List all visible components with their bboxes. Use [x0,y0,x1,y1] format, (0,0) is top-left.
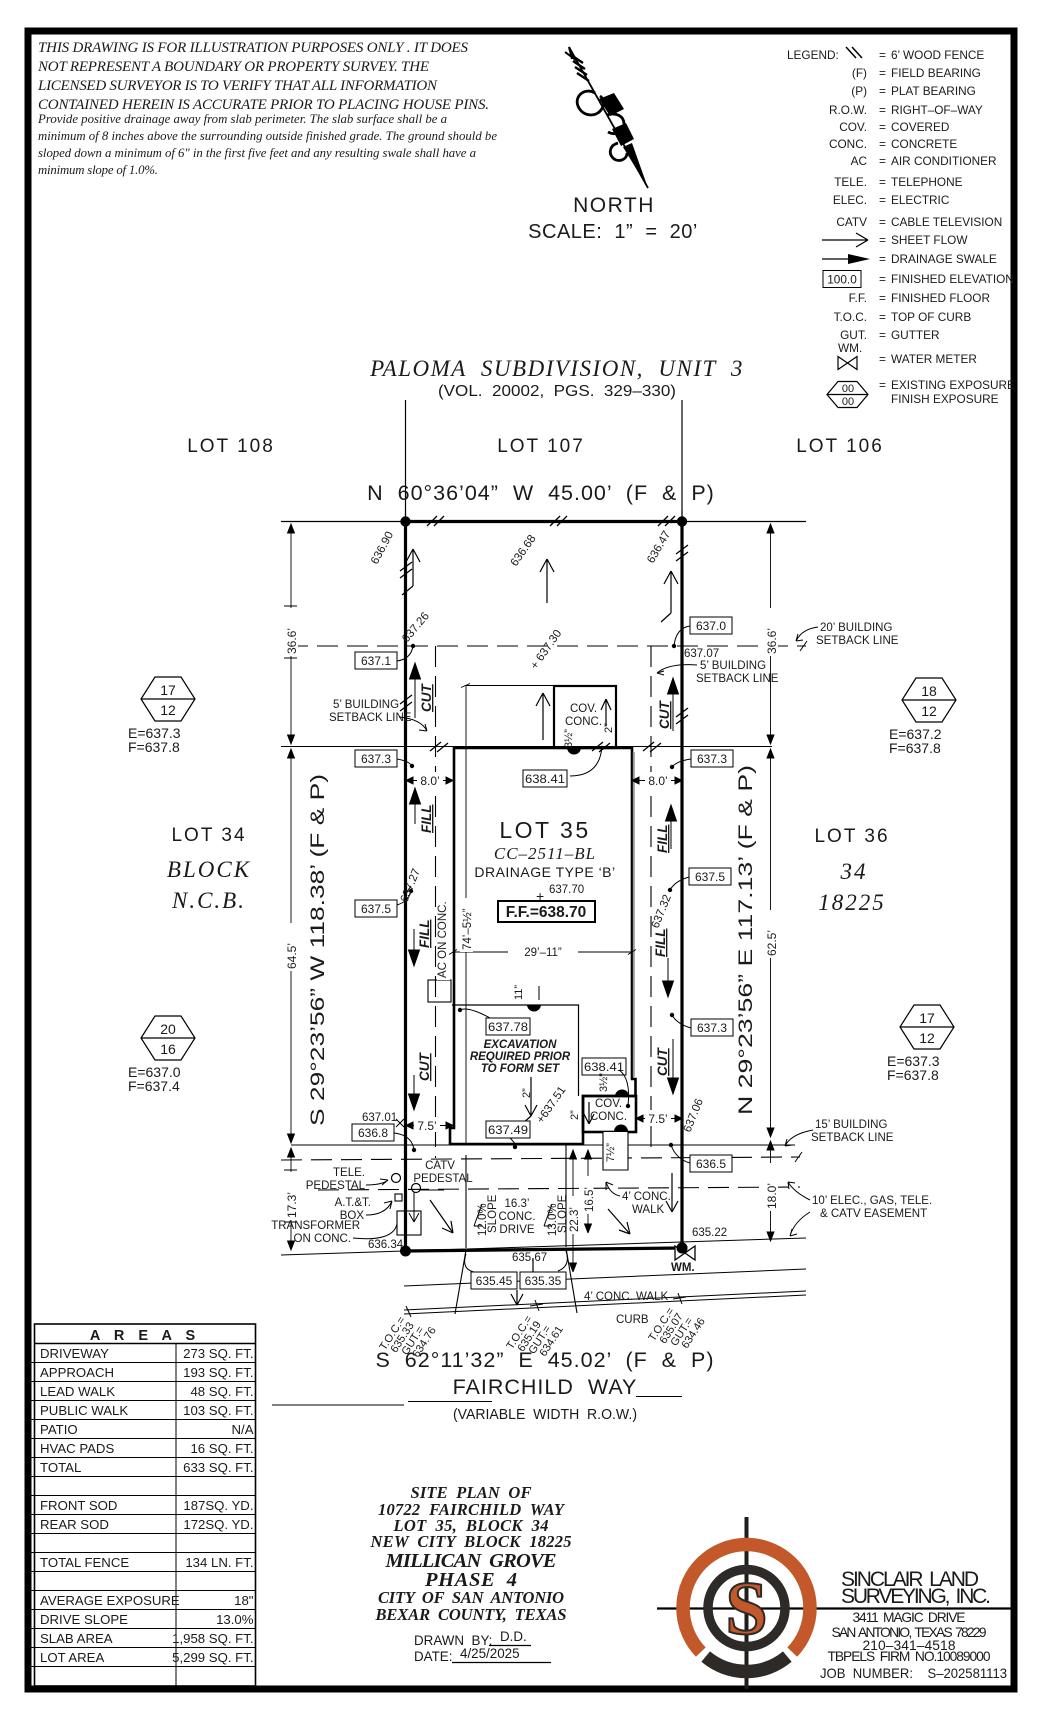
svg-text:CONC.: CONC. [498,1211,535,1223]
svg-text:13.0%: 13.0% [216,1612,254,1627]
svg-text:=: = [879,252,886,266]
svg-text:FILL: FILL [653,929,668,958]
svg-text:18225: 18225 [818,890,886,915]
svg-text:=: = [879,48,886,62]
svg-text:5’ BUILDING: 5’ BUILDING [700,660,766,672]
svg-text:RIGHT–OF–WAY: RIGHT–OF–WAY [891,103,983,117]
svg-text:36.6’: 36.6’ [285,628,299,654]
svg-text:(F): (F) [852,66,867,80]
svg-text:NEW CITY BLOCK 18225: NEW CITY BLOCK 18225 [370,1532,572,1551]
svg-text:Provide positive drainage away: Provide positive drainage away from slab… [37,112,447,126]
svg-text:15’ BUILDING: 15’ BUILDING [815,1119,887,1131]
svg-text:17: 17 [160,682,176,698]
svg-text:GUTTER: GUTTER [891,328,940,342]
svg-text:8.0’: 8.0’ [420,774,439,788]
svg-text:DRIVE SLOPE: DRIVE SLOPE [40,1612,128,1627]
svg-text:635.67: 635.67 [512,1252,547,1264]
svg-text:=: = [879,291,886,305]
svg-text:CONTAINED HEREIN IS ACCURATE P: CONTAINED HEREIN IS ACCURATE PRIOR TO PL… [38,97,489,113]
svg-text:AVERAGE EXPOSURE: AVERAGE EXPOSURE [40,1593,180,1608]
svg-text:100.0: 100.0 [827,273,857,287]
svg-text:=: = [879,103,886,117]
svg-text:3½”: 3½” [563,729,575,748]
svg-text:A.T.&T.: A.T.&T. [335,1197,371,1209]
svg-text:=: = [879,328,886,342]
svg-text:2”: 2” [569,1110,581,1120]
svg-text:DRAINAGE TYPE ‘B’: DRAINAGE TYPE ‘B’ [474,864,615,880]
svg-text:LICENSED SURVEYOR IS TO VERIFY: LICENSED SURVEYOR IS TO VERIFY THAT ALL … [37,78,438,94]
svg-text:=: = [879,66,886,80]
svg-text:DRAINAGE SWALE: DRAINAGE SWALE [891,252,997,266]
svg-text:=: = [879,120,886,134]
svg-text:637.1: 637.1 [361,654,391,668]
svg-text:636.34: 636.34 [368,1239,404,1251]
svg-text:DRIVE: DRIVE [499,1224,534,1236]
svg-text:LEGEND:: LEGEND: [787,48,839,62]
svg-text:1,958 SQ. FT.: 1,958 SQ. FT. [172,1631,253,1646]
svg-text:638.41: 638.41 [584,1060,624,1074]
svg-text:CATV: CATV [425,1160,455,1172]
svg-text:TRANSFORMER: TRANSFORMER [271,1220,360,1232]
svg-text:22.3’: 22.3’ [569,1207,581,1232]
svg-text:S 29°23’56” W 118.38’ (F & P): S 29°23’56” W 118.38’ (F & P) [307,774,329,1126]
svg-text:DATE:: DATE: [414,1649,452,1664]
svg-text:12: 12 [919,1030,935,1046]
svg-text:WALK: WALK [632,1204,664,1216]
svg-text:PALOMA SUBDIVISION, UNIT 3: PALOMA SUBDIVISION, UNIT 3 [369,356,744,381]
svg-text:134 LN. FT.: 134 LN. FT. [185,1555,253,1570]
svg-text:T.O.C.: T.O.C. [834,310,867,324]
svg-text:ELECTRIC: ELECTRIC [891,193,950,207]
svg-text:A R E A S: A R E A S [90,1328,200,1344]
svg-text:(VOL. 20002, PGS. 329–330): (VOL. 20002, PGS. 329–330) [438,383,676,400]
svg-text:637.5: 637.5 [361,902,391,916]
svg-text:TELEPHONE: TELEPHONE [891,175,963,189]
svg-text:SETBACK LINE: SETBACK LINE [329,712,412,724]
svg-text:WATER METER: WATER METER [891,352,977,366]
svg-text:17: 17 [919,1010,935,1026]
svg-text:637.01: 637.01 [362,1112,397,1124]
svg-text:LOT 108: LOT 108 [187,436,275,457]
svg-text:TO FORM SET: TO FORM SET [481,1063,560,1075]
svg-text:F.F.=638.70: F.F.=638.70 [506,904,587,921]
svg-text:NOT REPRESENT A BOUNDARY OR PR: NOT REPRESENT A BOUNDARY OR PROPERTY SUR… [37,59,429,75]
svg-text:SETBACK LINE: SETBACK LINE [811,1132,894,1144]
svg-text:637.49: 637.49 [488,1123,528,1137]
svg-text:(P): (P) [851,84,867,98]
svg-text:PATIO: PATIO [40,1422,78,1437]
svg-text:LOT 35: LOT 35 [499,817,590,843]
svg-text:PLAT BEARING: PLAT BEARING [891,84,976,98]
svg-text:REQUIRED PRIOR: REQUIRED PRIOR [470,1051,571,1063]
svg-text:TELE.: TELE. [834,175,867,189]
svg-text:TOTAL: TOTAL [40,1460,81,1475]
svg-text:SETBACK LINE: SETBACK LINE [696,673,779,685]
svg-text:=: = [879,378,886,392]
svg-text:=: = [879,352,886,366]
svg-text:FILL: FILL [419,805,434,834]
svg-text:LOT 106: LOT 106 [796,436,884,457]
svg-text:AC: AC [851,154,868,168]
svg-text:11”: 11” [513,985,525,1000]
svg-text:637.07: 637.07 [684,648,719,660]
svg-text:CONCRETE: CONCRETE [891,137,957,151]
svg-text:637.70: 637.70 [549,884,584,896]
svg-text:48 SQ. FT.: 48 SQ. FT. [190,1384,253,1399]
svg-text:N/A: N/A [232,1422,254,1437]
svg-text:8.0’: 8.0’ [648,774,667,788]
svg-text:637.78: 637.78 [488,1020,528,1034]
svg-text:10’ ELEC., GAS, TELE.: 10’ ELEC., GAS, TELE. [812,1195,932,1207]
svg-text:BLOCK: BLOCK [167,857,251,882]
svg-text:SCALE: 1” = 20’: SCALE: 1” = 20’ [528,221,698,243]
svg-text:LOT 34: LOT 34 [171,825,246,846]
svg-text:SLOPE: SLOPE [557,1194,569,1233]
svg-text:638.41: 638.41 [525,772,565,786]
svg-text:COVERED: COVERED [891,120,949,134]
svg-text:2”: 2” [603,723,615,733]
svg-text:FINISH EXPOSURE: FINISH EXPOSURE [891,392,999,406]
svg-text:AIR CONDITIONER: AIR CONDITIONER [891,154,997,168]
svg-text:D.D.: D.D. [500,1629,527,1644]
svg-text:EXISTING EXPOSURE: EXISTING EXPOSURE [891,378,1015,392]
svg-text:12: 12 [921,703,937,719]
svg-text:7.5’: 7.5’ [417,1119,436,1133]
svg-text:LOT AREA: LOT AREA [40,1650,104,1665]
svg-text:F=637.8: F=637.8 [887,1067,939,1083]
svg-text:34: 34 [840,859,868,884]
svg-text:N 29°23’56” E 117.13’ (F & P): N 29°23’56” E 117.13’ (F & P) [735,765,757,1115]
svg-text:74’–5½”: 74’–5½” [462,908,474,950]
svg-text:636.8: 636.8 [358,1126,388,1140]
svg-text:16 SQ. FT.: 16 SQ. FT. [190,1441,253,1456]
svg-text:N 60°36’04” W 45.00’ (F &: N 60°36’04” W 45.00’ (F & P) [367,481,715,505]
svg-text:6’ WOOD FENCE: 6’ WOOD FENCE [891,48,984,62]
svg-text:LEAD WALK: LEAD WALK [40,1384,115,1399]
svg-text:COV.: COV. [570,703,597,715]
svg-text:minimum slope of 1.0%.: minimum slope of 1.0%. [38,163,158,177]
svg-text:4’ CONC. WALK: 4’ CONC. WALK [584,1291,668,1303]
svg-text:635.22: 635.22 [692,1227,727,1239]
svg-text:FILL: FILL [417,920,432,949]
svg-text:N.C.B.: N.C.B. [171,888,246,913]
svg-text:WM.: WM. [838,341,862,355]
svg-text:ELEC.: ELEC. [833,193,867,207]
svg-text:20’ BUILDING: 20’ BUILDING [820,622,892,634]
svg-text:LOT 107: LOT 107 [497,436,585,457]
svg-text:7.5’: 7.5’ [648,1112,667,1126]
svg-text:18: 18 [921,683,937,699]
svg-text:F=637.8: F=637.8 [889,740,941,756]
svg-text:F.F.: F.F. [849,291,867,305]
svg-text:18": 18" [234,1593,254,1608]
svg-text:4’ CONC.: 4’ CONC. [622,1191,671,1203]
svg-text:BEXAR COUNTY, TEXAS: BEXAR COUNTY, TEXAS [375,1605,567,1624]
svg-text:273 SQ. FT.: 273 SQ. FT. [183,1346,253,1361]
svg-text:172SQ. YD.: 172SQ. YD. [183,1517,253,1532]
svg-text:17.3’: 17.3’ [285,1192,299,1218]
svg-text:SHEET FLOW: SHEET FLOW [891,233,968,247]
svg-text:635.45: 635.45 [476,1274,513,1288]
svg-text:16.3’: 16.3’ [505,1198,530,1210]
svg-text:S 62°11’32” E 45.02’ (F &: S 62°11’32” E 45.02’ (F & P) [376,1348,715,1372]
svg-text:SLAB AREA: SLAB AREA [40,1631,113,1646]
svg-text:00: 00 [842,396,854,408]
svg-text:CABLE TELEVISION: CABLE TELEVISION [891,215,1002,229]
svg-text:=: = [879,310,886,324]
svg-text:=: = [879,154,886,168]
svg-text:16.5’: 16.5’ [584,1187,596,1212]
svg-text:CUT: CUT [655,1047,670,1076]
svg-text:R.O.W.: R.O.W. [829,103,867,117]
svg-text:633 SQ. FT.: 633 SQ. FT. [183,1460,253,1475]
svg-text:5’ BUILDING: 5’ BUILDING [333,699,399,711]
svg-text:FILL: FILL [655,825,670,854]
svg-text:APPROACH: APPROACH [40,1365,114,1380]
svg-text:TOP OF CURB: TOP OF CURB [891,310,971,324]
svg-text:ON CONC.: ON CONC. [294,1233,352,1245]
svg-text:LOT 36: LOT 36 [814,826,889,847]
svg-text:=: = [879,233,886,247]
svg-text:FINISHED ELEVATION: FINISHED ELEVATION [891,272,1014,286]
svg-text:FAIRCHILD WAY: FAIRCHILD WAY [453,1375,638,1399]
svg-text:GUT.: GUT. [840,328,867,342]
svg-text:636.5: 636.5 [696,1157,726,1171]
svg-text:FIELD BEARING: FIELD BEARING [891,66,981,80]
svg-text:=: = [879,137,886,151]
svg-text:FINISHED FLOOR: FINISHED FLOOR [891,291,990,305]
svg-text:637.3: 637.3 [697,1021,727,1035]
svg-text:AC ON CONC.: AC ON CONC. [437,901,449,978]
svg-text:COV.: COV. [595,1098,622,1110]
svg-text:CUT: CUT [657,700,672,729]
svg-text:5,299 SQ. FT.: 5,299 SQ. FT. [172,1650,253,1665]
svg-text:3411 MAGIC DRIVE: 3411 MAGIC DRIVE [853,1610,966,1625]
svg-text:(VARIABLE WIDTH R.O.W.): (VARIABLE WIDTH R.O.W.) [453,1407,637,1423]
svg-text:18.0’: 18.0’ [765,1183,779,1209]
svg-text:2”: 2” [521,1088,533,1098]
svg-text:CATV: CATV [836,215,867,229]
svg-text:3½”: 3½” [598,1073,610,1092]
svg-text:CONC.: CONC. [829,137,867,151]
svg-text:CONC.: CONC. [565,716,602,728]
svg-text:PUBLIC WALK: PUBLIC WALK [40,1403,128,1418]
svg-text:64.5’: 64.5’ [285,943,299,969]
svg-text:20: 20 [160,1021,176,1037]
svg-text:637.3: 637.3 [697,752,727,766]
svg-text:NORTH: NORTH [573,194,655,217]
svg-text:PEDESTAL: PEDESTAL [413,1173,473,1185]
svg-text:103 SQ. FT.: 103 SQ. FT. [183,1403,253,1418]
svg-text:=: = [879,272,886,286]
svg-text:637.5: 637.5 [695,870,725,884]
svg-text:635.35: 635.35 [525,1274,562,1288]
svg-text:SURVEYING, INC.: SURVEYING, INC. [841,1585,991,1608]
svg-text:EXCAVATION: EXCAVATION [484,1039,558,1051]
svg-text:CURB: CURB [616,1314,649,1326]
svg-text:193 SQ. FT.: 193 SQ. FT. [183,1365,253,1380]
svg-text:TELE.: TELE. [333,1167,365,1179]
svg-text:HVAC PADS: HVAC PADS [40,1441,114,1456]
svg-text:CONC.: CONC. [590,1111,627,1123]
svg-text:TBPELS FIRM NO.10089000: TBPELS FIRM NO.10089000 [828,1649,991,1664]
svg-text:=: = [879,193,886,207]
svg-text:=: = [879,175,886,189]
svg-text:12: 12 [160,702,176,718]
svg-text:36.6’: 36.6’ [765,628,779,654]
svg-text:COV.: COV. [839,120,867,134]
svg-text:187SQ. YD.: 187SQ. YD. [183,1498,253,1513]
svg-text:minimum of 8 inches above the: minimum of 8 inches above the surroundin… [38,129,497,143]
svg-text:16: 16 [160,1041,176,1057]
svg-text:FRONT SOD: FRONT SOD [40,1498,117,1513]
svg-text:29’–11”: 29’–11” [524,947,562,959]
svg-text:THIS DRAWING IS FOR ILLUSTRATI: THIS DRAWING IS FOR ILLUSTRATION PURPOSE… [38,40,469,56]
svg-text:& CATV EASEMENT: & CATV EASEMENT [820,1208,927,1220]
svg-text:PEDESTAL: PEDESTAL [306,1180,366,1192]
svg-text:=: = [879,215,886,229]
svg-text:WM.: WM. [671,1262,695,1274]
svg-text:REAR SOD: REAR SOD [40,1517,109,1532]
svg-text:637.3: 637.3 [361,752,391,766]
svg-text:62.5’: 62.5’ [765,930,779,956]
svg-text:S: S [725,1567,767,1651]
svg-text:F=637.8: F=637.8 [128,739,180,755]
svg-text:TOTAL FENCE: TOTAL FENCE [40,1555,129,1570]
svg-text:4/25/2025: 4/25/2025 [460,1646,520,1661]
svg-text:CC–2511–BL: CC–2511–BL [494,844,596,863]
svg-text:7½”: 7½” [605,1143,617,1162]
svg-text:=: = [879,84,886,98]
svg-text:F=637.4: F=637.4 [128,1078,180,1094]
svg-text:CUT: CUT [417,1052,432,1081]
svg-text:SETBACK LINE: SETBACK LINE [816,635,899,647]
svg-text:JOB NUMBER: S–202581113: JOB NUMBER: S–202581113 [820,1666,1007,1681]
svg-text:637.0: 637.0 [696,619,726,633]
svg-text:sloped down a minimum of 6" in: sloped down a minimum of 6" in the first… [38,146,476,160]
svg-text:CUT: CUT [419,683,434,712]
svg-text:00: 00 [842,383,854,395]
svg-text:DRIVEWAY: DRIVEWAY [40,1346,109,1361]
svg-text:SLOPE: SLOPE [487,1194,499,1233]
